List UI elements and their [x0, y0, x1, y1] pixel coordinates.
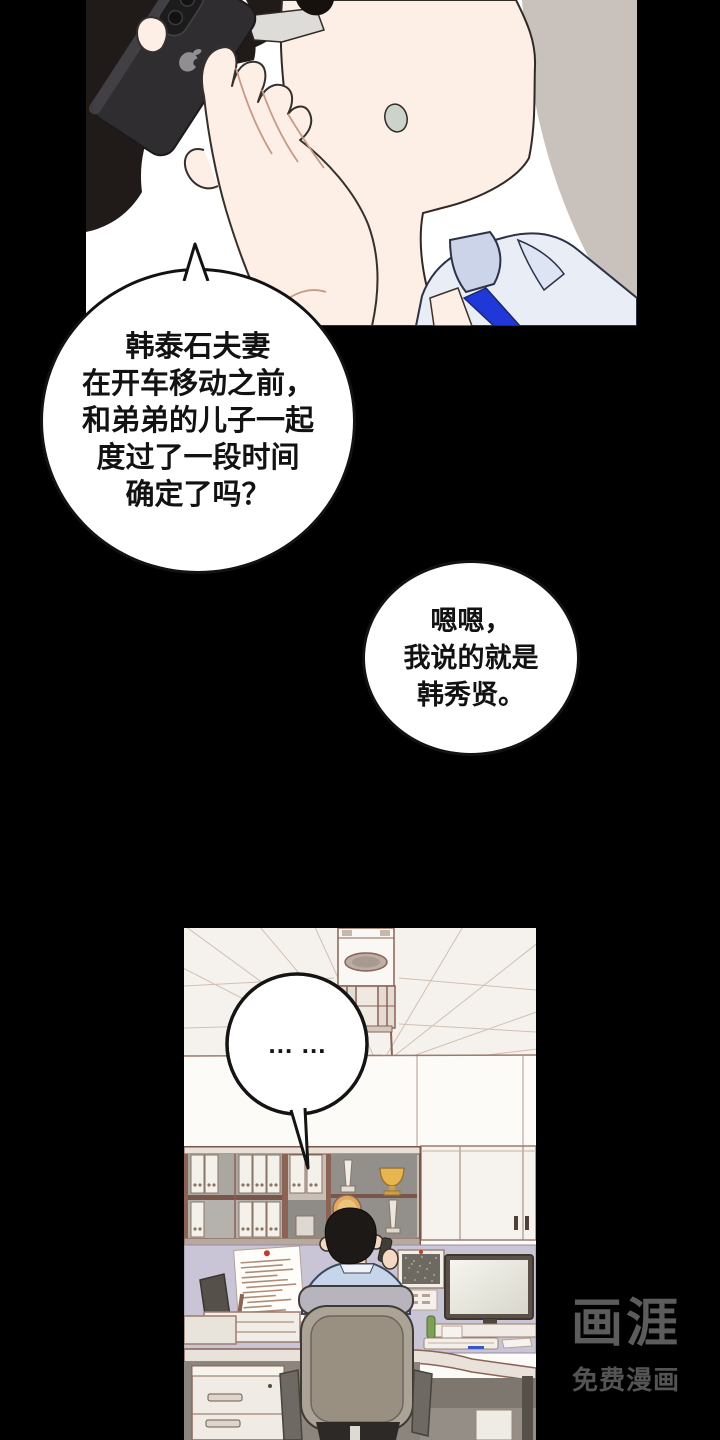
desk-papers — [502, 1338, 532, 1348]
bubble1-line: 度过了一段时间 — [96, 440, 299, 477]
speech-bubble-1: 韩泰石夫妻 在开车移动之前， 和弟弟的儿子一起 度过了一段时间 确定了吗？ — [40, 268, 356, 574]
bubble2-line: 韩秀贤。 — [417, 677, 525, 714]
armrest — [412, 1370, 432, 1436]
cpu-box — [476, 1410, 512, 1440]
comic-page: 韩泰石夫妻 在开车移动之前， 和弟弟的儿子一起 度过了一段时间 确定了吗？ 嗯嗯… — [0, 0, 720, 1440]
drawer-handle — [206, 1420, 240, 1427]
wall-cabinets — [421, 1146, 536, 1240]
panel-office: … … — [184, 928, 536, 1440]
bubble1-line: 确定了吗？ — [125, 477, 270, 514]
watermark-tagline: 免费漫画 — [558, 1360, 694, 1397]
cabinet-handle — [514, 1216, 518, 1230]
green-bottle — [427, 1316, 435, 1338]
watermark-logo: 画涯 — [558, 1294, 694, 1354]
award-obelisk — [389, 1200, 397, 1228]
drawer-unit — [192, 1366, 284, 1440]
trophy-cup — [380, 1168, 404, 1195]
office-bubble-text: … … — [267, 1029, 326, 1059]
award-obelisk — [344, 1160, 352, 1186]
raised-hand — [382, 1249, 398, 1269]
watermark: 画涯 免费漫画 — [558, 1294, 694, 1397]
bubble1-line: 韩泰石夫妻 — [125, 329, 270, 366]
bubble1-tail — [182, 241, 210, 281]
blue-pen — [468, 1346, 484, 1349]
bubble1-line: 和弟弟的儿子一起 — [82, 403, 314, 440]
drawer-keyhole — [268, 1384, 272, 1388]
bubble1-line: 在开车移动之前， — [82, 366, 314, 403]
drawer-handle — [208, 1394, 242, 1401]
panel-office-art: … … — [184, 928, 536, 1440]
monitor — [445, 1255, 533, 1330]
desk-leg — [522, 1376, 533, 1440]
bubble2-line: 嗯嗯， — [431, 603, 512, 640]
head-hair — [325, 1208, 376, 1264]
armrest — [280, 1370, 302, 1440]
book-stack — [184, 1316, 236, 1344]
shelf-unit — [184, 1147, 420, 1245]
bubble2-line: 我说的就是 — [404, 640, 539, 677]
speech-bubble-2: 嗯嗯， 我说的就是 韩秀贤。 — [362, 560, 580, 756]
shirt-collar-back — [340, 1264, 374, 1273]
under-desk — [420, 1378, 536, 1412]
cabinet-handle — [525, 1216, 529, 1230]
monitor-screen — [450, 1260, 528, 1314]
